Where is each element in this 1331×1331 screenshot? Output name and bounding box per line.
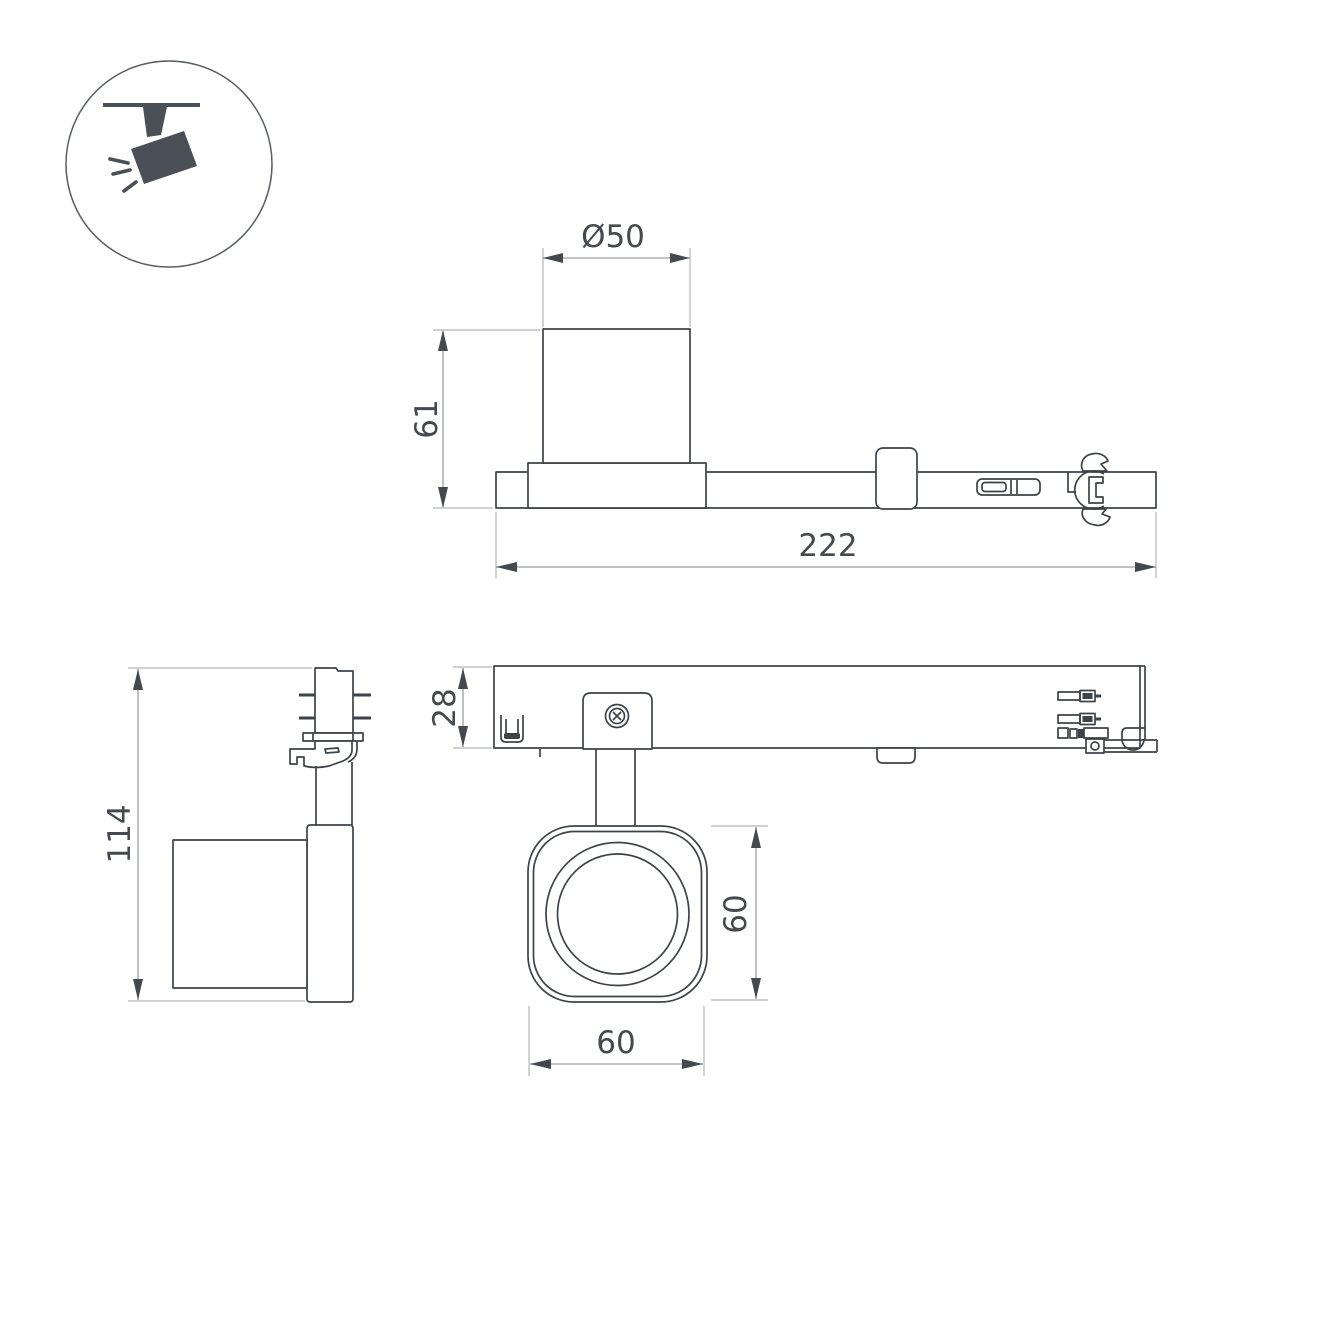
luminaire-side-view: 114 [102, 668, 371, 1002]
lamp-head-top [528, 826, 707, 1002]
dim-label-diameter-50: Ø50 [581, 219, 645, 255]
latch-lower-wing [1082, 509, 1110, 525]
lamp-body [307, 825, 353, 1002]
dimension-depth-28: 28 [427, 667, 492, 748]
track-side-view: Ø50 61 222 [409, 219, 1156, 578]
clip-tab [877, 748, 915, 763]
adapter-flange [303, 733, 363, 741]
dimension-head-width-60: 60 [529, 1006, 704, 1076]
track-spotlight-icon [66, 61, 272, 267]
dimension-length-222: 222 [496, 512, 1156, 578]
lamp-base-plate [528, 463, 706, 508]
dim-label-length-222: 222 [798, 528, 857, 564]
icon-ceiling-track [103, 103, 200, 107]
dim-label-height-61: 61 [409, 399, 445, 438]
latch-upper-wing [1082, 453, 1108, 471]
luminaire-stem [316, 762, 352, 826]
dim-label-head-height-60: 60 [718, 894, 754, 933]
head-stem [596, 749, 635, 827]
lamp-head-barrel [173, 840, 307, 988]
dim-label-depth-28: 28 [427, 688, 463, 727]
technical-drawing-canvas: Ø50 61 222 [0, 0, 1331, 1331]
locking-bracket [290, 741, 357, 768]
dimension-head-height-60: 60 [711, 826, 768, 1000]
track-top-view: 28 60 60 [427, 666, 1157, 1076]
lamp-cylinder [543, 329, 690, 463]
end-screw-plate [1086, 739, 1104, 753]
phase-slider-switch [977, 479, 1040, 495]
adapter-end-block [315, 668, 353, 733]
pivot-plate [583, 693, 652, 749]
drawing-page: Ø50 61 222 [0, 0, 1331, 1331]
dim-label-head-width-60: 60 [596, 1025, 635, 1061]
dim-label-height-114: 114 [102, 804, 138, 863]
mount-clip [876, 448, 917, 509]
dimension-diameter-50: Ø50 [543, 219, 690, 327]
